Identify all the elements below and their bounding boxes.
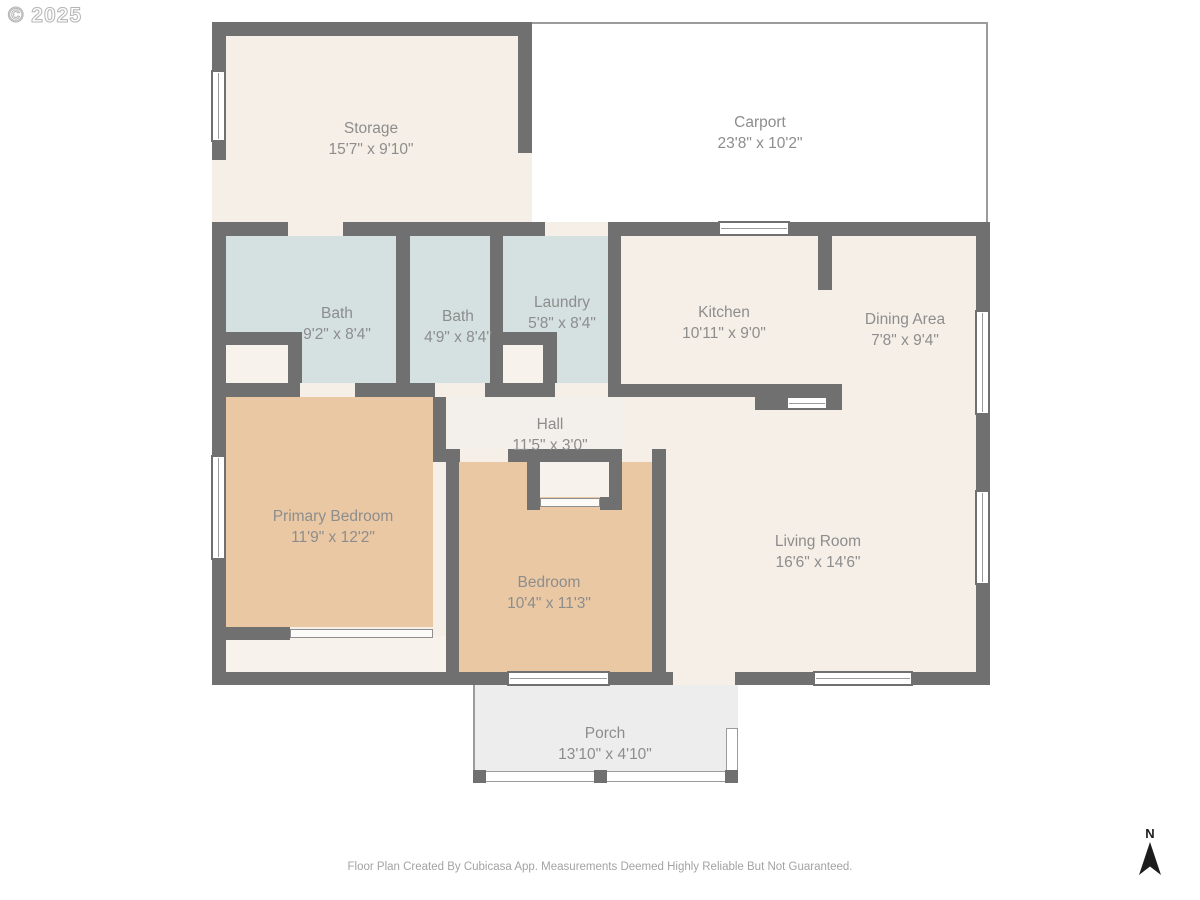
- wall: [527, 497, 540, 510]
- window-glass-line: [721, 228, 787, 229]
- room-label-dining-area: Dining Area 7'8" x 9'4": [865, 309, 945, 351]
- room-label-bath-1: Bath 9'2" x 8'4": [303, 303, 371, 345]
- wall: [212, 672, 507, 685]
- storage-window: [211, 70, 226, 142]
- kitchen-pass-through-window: [786, 396, 828, 410]
- room-name: Storage: [328, 118, 413, 139]
- wall: [518, 22, 532, 153]
- wall: [485, 383, 555, 397]
- room-dims: 11'9" x 12'2": [273, 527, 394, 548]
- closet-door: [540, 498, 600, 507]
- wall: [226, 383, 300, 397]
- wall: [212, 22, 532, 36]
- wall: [490, 236, 503, 383]
- living-room-south-window: [813, 671, 913, 686]
- window-glass-line: [218, 73, 219, 139]
- room-dims: 11'5" x 3'0": [512, 435, 587, 456]
- room-label-laundry: Laundry 5'8" x 8'4": [528, 292, 596, 334]
- kitchen-window: [718, 221, 790, 236]
- wall: [976, 585, 990, 685]
- window-glass-line: [816, 678, 910, 679]
- wall: [913, 672, 990, 685]
- wall: [226, 627, 290, 640]
- room-dims: 9'2" x 8'4": [303, 324, 371, 345]
- porch-railing: [726, 728, 738, 774]
- room-dims: 10'11" x 9'0": [682, 323, 766, 344]
- bedroom-window: [507, 671, 610, 686]
- wall: [343, 222, 545, 236]
- copyright-watermark: © 2025: [8, 4, 82, 28]
- room-name: Laundry: [528, 292, 596, 313]
- room-dims: 4'9" x 8'4": [424, 327, 492, 348]
- wall: [396, 236, 410, 383]
- porch-post: [725, 770, 738, 783]
- room-label-hall: Hall 11'5" x 3'0": [512, 414, 587, 456]
- room-label-carport: Carport 23'8" x 10'2": [717, 112, 802, 154]
- wall: [608, 222, 718, 236]
- window-glass-line: [218, 458, 219, 557]
- window-glass-line: [789, 403, 825, 404]
- wall: [446, 452, 459, 685]
- wall: [212, 222, 226, 455]
- bedroom-closet-fill: [540, 462, 609, 497]
- room-name: Porch: [558, 723, 652, 744]
- wall: [288, 332, 302, 383]
- laundry-closet-fill: [503, 345, 543, 383]
- primary-bedroom-window: [211, 455, 226, 560]
- wall: [600, 497, 622, 510]
- room-label-storage: Storage 15'7" x 9'10": [328, 118, 413, 160]
- wall: [433, 397, 446, 452]
- room-label-bath-2: Bath 4'9" x 8'4": [424, 306, 492, 348]
- wall: [608, 236, 621, 397]
- wall: [755, 397, 786, 410]
- wall: [543, 332, 557, 383]
- room-dims: 23'8" x 10'2": [717, 133, 802, 154]
- wall: [212, 22, 226, 70]
- dining-window: [975, 310, 990, 415]
- porch-edge-line: [473, 685, 475, 775]
- room-name: Living Room: [775, 531, 861, 552]
- window-glass-line: [982, 313, 983, 412]
- footer-disclaimer: Floor Plan Created By Cubicasa App. Meas…: [0, 861, 1200, 873]
- room-dims: 15'7" x 9'10": [328, 139, 413, 160]
- room-label-bedroom: Bedroom 10'4" x 11'3": [507, 572, 591, 614]
- wall: [976, 415, 990, 490]
- wall: [818, 236, 832, 290]
- porch-post: [594, 770, 607, 783]
- room-name: Kitchen: [682, 302, 766, 323]
- room-dims: 10'4" x 11'3": [507, 593, 591, 614]
- floor-plan-page: { "watermark": "© 2025", "footer": "Floo…: [0, 0, 1200, 900]
- room-name: Primary Bedroom: [273, 506, 394, 527]
- room-name: Dining Area: [865, 309, 945, 330]
- room-dims: 16'6" x 14'6": [775, 552, 861, 573]
- window-glass-line: [510, 678, 607, 679]
- room-name: Hall: [512, 414, 587, 435]
- wall: [212, 142, 226, 160]
- room-label-living-room: Living Room 16'6" x 14'6": [775, 531, 861, 573]
- wall: [790, 222, 976, 236]
- room-dims: 7'8" x 9'4": [865, 330, 945, 351]
- room-name: Bath: [303, 303, 371, 324]
- room-name: Bath: [424, 306, 492, 327]
- compass-north-label: N: [1137, 827, 1163, 841]
- room-dims: 13'10" x 4'10": [558, 744, 652, 765]
- primary-closet-fill: [226, 636, 446, 672]
- room-dims: 5'8" x 8'4": [528, 313, 596, 334]
- wall: [212, 560, 226, 685]
- porch-post: [473, 770, 486, 783]
- living-room-window: [975, 490, 990, 585]
- room-label-primary-bedroom: Primary Bedroom 11'9" x 12'2": [273, 506, 394, 548]
- wall: [652, 449, 666, 685]
- wall: [828, 397, 842, 410]
- room-name: Carport: [717, 112, 802, 133]
- window-glass-line: [982, 493, 983, 582]
- room-label-kitchen: Kitchen 10'11" x 9'0": [682, 302, 766, 344]
- wall: [976, 222, 990, 310]
- room-label-porch: Porch 13'10" x 4'10": [558, 723, 652, 765]
- compass: N: [1137, 827, 1163, 882]
- wall: [355, 383, 435, 397]
- closet-door: [290, 629, 433, 638]
- room-name: Bedroom: [507, 572, 591, 593]
- wall: [735, 672, 813, 685]
- bath-closet-fill: [226, 345, 288, 383]
